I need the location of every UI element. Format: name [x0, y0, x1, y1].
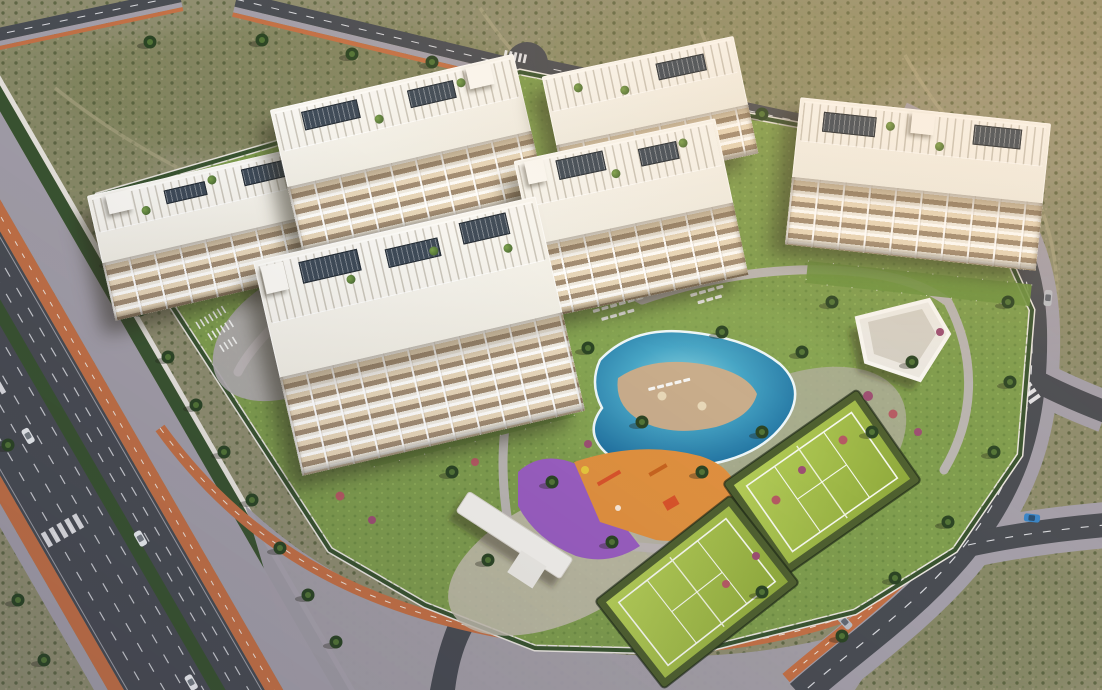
roof-planter [934, 141, 944, 151]
apartment-block-5 [785, 97, 1051, 271]
aerial-render [0, 0, 1102, 690]
roof-core [911, 112, 936, 135]
